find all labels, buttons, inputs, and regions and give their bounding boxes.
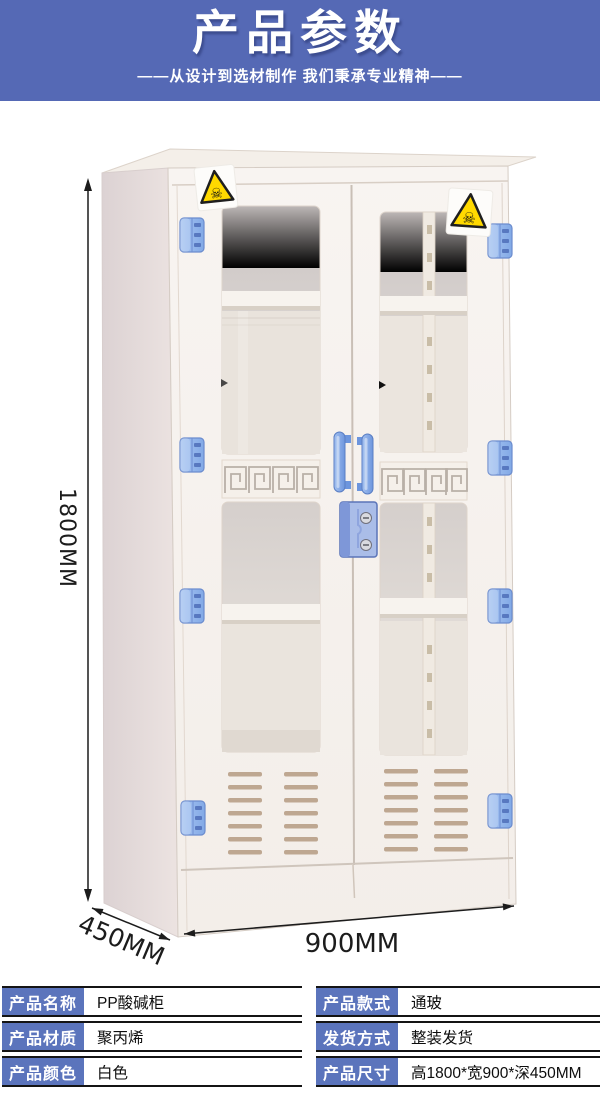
shelf xyxy=(380,598,467,616)
spec-label: 产品材质 xyxy=(2,1023,84,1050)
spec-label: 发货方式 xyxy=(316,1023,398,1050)
spec-label: 产品款式 xyxy=(316,988,398,1015)
shelf-support-strip xyxy=(423,212,435,452)
door-lock xyxy=(340,502,377,557)
shelf xyxy=(222,291,320,308)
table-row: 产品材质 聚丙烯 xyxy=(2,1021,302,1052)
table-row: 发货方式 整装发货 xyxy=(316,1021,600,1052)
page-title: 产品参数 xyxy=(0,0,600,60)
table-row: 产品名称 PP酸碱柜 xyxy=(2,986,302,1017)
table-row: 产品颜色 白色 xyxy=(2,1056,302,1087)
toxic-warning-icon: ☠ xyxy=(446,188,493,237)
left-door-upper-window xyxy=(221,206,320,454)
spec-value: PP酸碱柜 xyxy=(84,988,164,1015)
spec-value: 高1800*宽900*深450MM xyxy=(398,1058,582,1085)
meander-band-right xyxy=(380,462,467,500)
height-label: 1800MM xyxy=(54,488,79,588)
spec-value: 通玻 xyxy=(398,988,442,1015)
spec-value: 整装发货 xyxy=(398,1023,473,1050)
toxic-warning-icon: ☠ xyxy=(194,164,238,211)
right-door-upper-window xyxy=(379,212,467,452)
skull-glyph: ☠ xyxy=(210,185,224,202)
cabinet-side-panel xyxy=(102,168,178,937)
spec-table-left: 产品名称 PP酸碱柜 产品材质 聚丙烯 产品颜色 白色 xyxy=(2,986,302,1091)
spec-label: 产品尺寸 xyxy=(316,1058,398,1085)
cabinet-illustration: ☠ ☠ 1800MM 450MM 900MM xyxy=(0,105,600,985)
width-label: 900MM xyxy=(305,929,400,959)
table-row: 产品尺寸 高1800*宽900*深450MM xyxy=(316,1056,600,1087)
cabinet-body: ☠ ☠ xyxy=(102,149,536,937)
product-figure: ☠ ☠ 1800MM 450MM 900MM xyxy=(0,105,600,985)
dimension-height: 1800MM xyxy=(54,178,92,902)
shelf xyxy=(222,604,320,622)
shelf xyxy=(380,296,467,313)
spec-table-right: 产品款式 通玻 发货方式 整装发货 产品尺寸 高1800*宽900*深450MM xyxy=(316,986,600,1091)
page-subtitle: ——从设计到选材制作 我们秉承专业精神—— xyxy=(0,65,600,86)
left-door-lower-window xyxy=(222,502,320,752)
spec-label: 产品颜色 xyxy=(2,1058,84,1085)
spec-value: 白色 xyxy=(84,1058,128,1085)
shelf-support-strip xyxy=(423,503,435,755)
spec-value: 聚丙烯 xyxy=(84,1023,144,1050)
spec-label: 产品名称 xyxy=(2,988,84,1015)
header-banner: 产品参数 ——从设计到选材制作 我们秉承专业精神—— xyxy=(0,0,600,101)
right-door-lower-window xyxy=(380,503,467,755)
skull-glyph: ☠ xyxy=(462,209,477,228)
meander-band-left xyxy=(222,460,320,498)
table-row: 产品款式 通玻 xyxy=(316,986,600,1017)
